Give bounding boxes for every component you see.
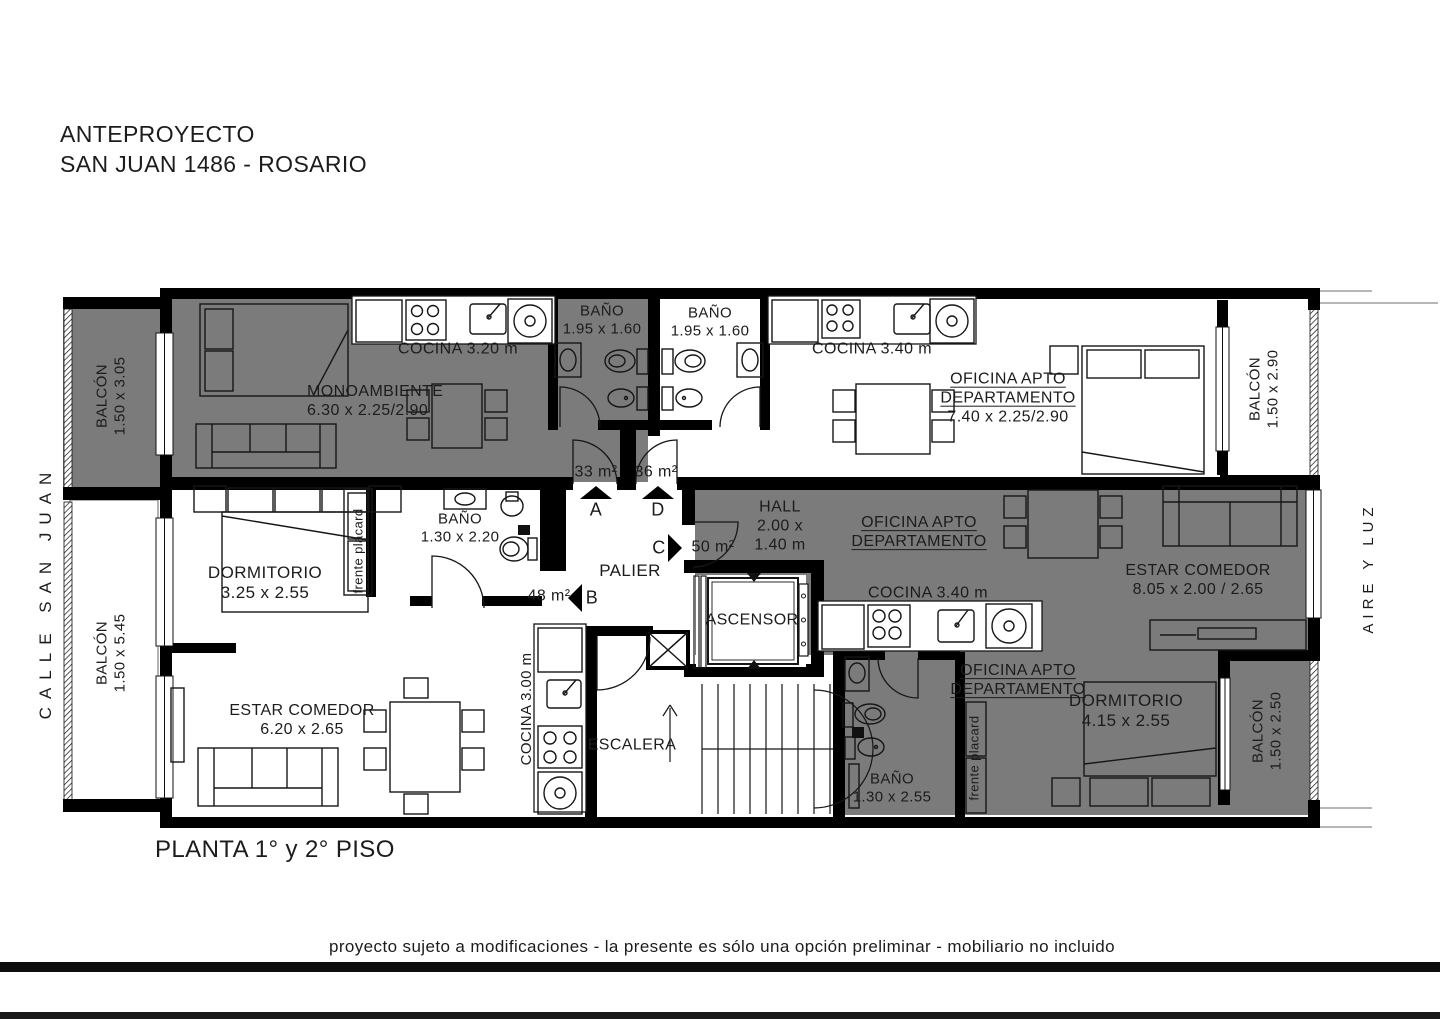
room-placard-b: frente placard (350, 508, 365, 593)
balcony-left-bottom-label: BALCÓN 1.50 x 5.45 (93, 614, 128, 693)
room-dormitorio-c: DORMITORIO 4.15 x 2.55 (1069, 691, 1183, 731)
unit-c-letter: C (652, 537, 665, 558)
room-palier: PALIER (599, 561, 661, 581)
room-hall: HALL 2.00 x 1.40 m (754, 499, 805, 556)
room-estar-c: ESTAR COMEDOR 8.05 x 2.00 / 2.65 (1125, 562, 1270, 600)
room-oficina-d: OFICINA APTO DEPARTAMENTO 7.40 x 2.25/2.… (940, 371, 1075, 428)
room-bano-d: BAÑO 1.95 x 1.60 (671, 304, 750, 339)
room-placard-c: frente placard (966, 715, 981, 800)
room-bano-a: BAÑO 1.95 x 1.60 (563, 302, 642, 337)
street-label-calle-san-juan: CALLE SAN JUAN (36, 465, 56, 720)
unit-a-letter: A (590, 499, 602, 520)
room-monoambiente: MONOAMBIENTE 6.30 x 2.25/2.90 (307, 383, 443, 421)
unit-a-area: 33 m² (575, 464, 618, 483)
balcony-left-top-label: BALCÓN 1.50 x 3.05 (93, 357, 128, 436)
page-title: ANTEPROYECTO SAN JUAN 1486 - ROSARIO (60, 120, 367, 180)
room-cocina-c: COCINA 3.40 m (868, 585, 988, 604)
balcony-right-bottom-label: BALCÓN 1.50 x 2.50 (1249, 692, 1284, 771)
room-cocina-a: COCINA 3.20 m (398, 341, 518, 360)
street-label-aire-y-luz: AIRE Y LUZ (1360, 502, 1378, 633)
floorplan-page: ANTEPROYECTO SAN JUAN 1486 - ROSARIO CAL… (0, 0, 1440, 1019)
room-bano-c: BAÑO 1.30 x 2.55 (853, 770, 932, 805)
room-estar-b: ESTAR COMEDOR 6.20 x 2.65 (229, 702, 374, 740)
unit-d-letter: D (651, 499, 664, 520)
room-cocina-d: COCINA 3.40 m (812, 341, 932, 360)
room-oficina-c: OFICINA APTO DEPARTAMENTO (851, 514, 986, 552)
room-oficina-c2: OFICINA APTO DEPARTAMENTO (950, 662, 1085, 700)
unit-b-area: 48 m² (528, 588, 571, 607)
room-escalera: ESCALERA (588, 737, 677, 756)
plan-name: PLANTA 1° y 2° PISO (155, 836, 395, 864)
title-line2: SAN JUAN 1486 - ROSARIO (60, 150, 367, 180)
disclaimer: proyecto sujeto a modificaciones - la pr… (329, 937, 1115, 957)
room-cocina-b: COCINA 3.00 m (518, 653, 536, 766)
room-ascensor: ASCENSOR (706, 612, 799, 631)
unit-c-area: 50 m² (692, 539, 735, 558)
balcony-right-top-label: BALCÓN 1.50 x 2.90 (1246, 350, 1281, 429)
room-bano-b: BAÑO 1.30 x 2.20 (421, 510, 500, 545)
unit-d-area: 36 m² (635, 464, 678, 483)
unit-b-letter: B (586, 587, 598, 608)
title-line1: ANTEPROYECTO (60, 120, 367, 150)
room-dormitorio-b: DORMITORIO 3.25 x 2.55 (208, 563, 322, 603)
